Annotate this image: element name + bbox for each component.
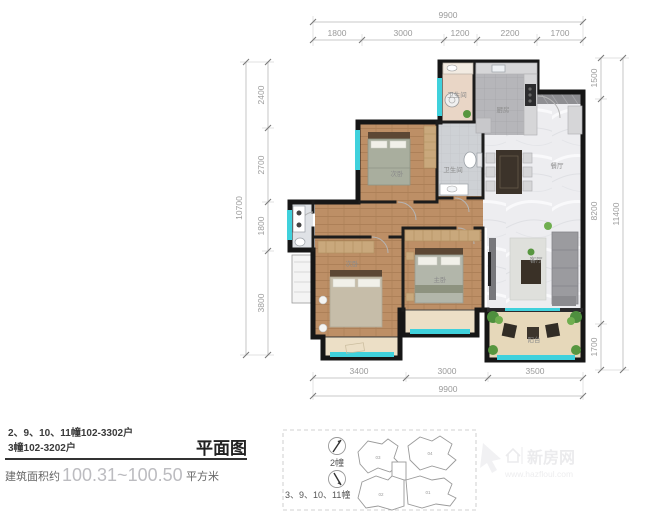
watermark-url: www.hazfloul.com [504, 469, 573, 479]
floorplan-page: 9900 1800 3000 1200 2200 1700 10700 2400… [0, 0, 650, 512]
dim-label: 2200 [501, 28, 520, 38]
stool [319, 324, 327, 332]
dim-label: 1800 [328, 28, 347, 38]
dim-label: 1700 [551, 28, 570, 38]
master-wardrobe [405, 230, 480, 241]
dim-label: 2700 [256, 155, 266, 174]
bedroom3-bay-glass [330, 352, 394, 357]
floorplan-canvas: 9900 1800 3000 1200 2200 1700 10700 2400… [0, 0, 650, 512]
room-label-bed2: 次卧 [391, 169, 405, 178]
site-label: 04 [427, 451, 433, 456]
tv [488, 252, 491, 286]
dim-label: 3500 [526, 366, 545, 376]
dim-label: 3800 [256, 293, 266, 312]
kitchen-sink [492, 65, 505, 72]
site-building-01 [406, 476, 456, 508]
burner [528, 87, 531, 90]
bed-throw [415, 285, 463, 293]
watermark-brand: 新房网 [527, 448, 575, 467]
unit-numbers-line1: 2、9、10、11幢102-3302户 [8, 426, 133, 439]
dim-label: 10700 [234, 196, 244, 220]
side-table [552, 296, 576, 306]
dim-label: 2400 [256, 85, 266, 104]
nightstand [406, 293, 414, 301]
entry-cabinet [568, 106, 582, 134]
master-headboard [415, 248, 463, 255]
legend-box: 2幢 3、9、10、11幢 03 04 02 01 [283, 430, 476, 510]
site-plan: 03 04 02 01 [358, 436, 456, 510]
bath1-basin [447, 65, 457, 71]
balcony-glass [497, 355, 575, 360]
plant [463, 110, 471, 118]
pillow [333, 279, 355, 287]
room-label-bath1: 卫生间 [447, 90, 467, 99]
pillow [418, 257, 437, 265]
dimension-left: 10700 2400 2700 1800 3800 [234, 59, 274, 358]
room-label-bath2: 卫生间 [443, 165, 463, 174]
balcony-chair [545, 323, 560, 338]
burner [528, 93, 531, 96]
bathroom3-window [287, 210, 292, 240]
bed2-wardrobe [424, 126, 436, 168]
area-suffix: 平方米 [186, 469, 219, 483]
bedroom2-window [355, 130, 360, 170]
house-icon [506, 449, 520, 462]
bed2-headboard [368, 132, 410, 139]
room-label-kitchen: 厨房 [497, 105, 510, 114]
dim-label: 9900 [439, 10, 458, 20]
site-label: 01 [425, 490, 431, 495]
dim-extensions [313, 16, 583, 46]
bath2-basin [447, 186, 457, 192]
plant [571, 345, 581, 355]
dim-ticks [310, 19, 586, 43]
bathroom1-window [437, 78, 442, 116]
dining-chair [523, 167, 532, 177]
dim-label: 3400 [350, 366, 369, 376]
bath3-toilet [295, 238, 305, 246]
dim-label: 1500 [589, 68, 599, 87]
plant [495, 316, 503, 324]
dim-label: 1700 [589, 337, 599, 356]
balcony-chair [502, 323, 517, 338]
pillow [371, 141, 387, 148]
unit-numbers-line2: 3幢102-3202户 [8, 441, 76, 454]
bath3-vanity [293, 206, 305, 232]
site-label: 03 [375, 455, 381, 460]
dimension-top: 9900 1800 3000 1200 2200 1700 [310, 10, 586, 46]
kitchen-counter-top [476, 63, 537, 74]
area-value: 100.31~100.50 [62, 465, 183, 485]
dining-chair [523, 153, 532, 163]
room-label-bed3: 次卧 [346, 259, 360, 268]
dim-label: 3000 [438, 366, 457, 376]
plant [488, 345, 498, 355]
master-bay-glass [410, 329, 470, 334]
corridor-floor [315, 202, 483, 228]
bath3-basin [297, 211, 302, 216]
bed3-headboard [330, 270, 382, 277]
title-block: 2、9、10、11幢102-3302户 3幢102-3202户 平面图 建筑面积… [5, 426, 247, 485]
dim-label: 1200 [451, 28, 470, 38]
dim-label: 8200 [589, 201, 599, 220]
dim-lines [313, 22, 583, 40]
toilet [464, 152, 476, 168]
balcony-sliding-glass [505, 308, 560, 311]
compass-label-top: 2幢 [330, 457, 344, 468]
pillow [358, 279, 380, 287]
dim-label: 1800 [256, 216, 266, 235]
room-label-master: 主卧 [434, 275, 448, 284]
plant [567, 317, 575, 325]
toilet-tank [477, 153, 482, 167]
floor-plan: 卫生间 厨房 卫生间 次卧 餐厅 客厅 主卧 次卧 阳台 [287, 62, 583, 360]
pillow [390, 141, 406, 148]
room-label-dining: 餐厅 [551, 161, 565, 170]
compass-south [329, 471, 346, 488]
bath3-basin [297, 223, 302, 228]
dining-chair [486, 181, 495, 191]
watermark-cursor-shape [480, 443, 501, 473]
dimension-bottom: 3400 3000 3500 9900 [310, 366, 586, 400]
compass-north [329, 438, 346, 455]
plant [528, 249, 535, 256]
burner [528, 99, 531, 102]
site-label: 02 [378, 492, 384, 497]
dimension-right: 1500 8200 1700 11400 [589, 55, 629, 373]
area-prefix: 建筑面积约 [5, 469, 60, 483]
dining-chair [486, 153, 495, 163]
dim-label: 9900 [439, 384, 458, 394]
dim-label: 11400 [611, 202, 621, 225]
fridge [476, 118, 491, 133]
bed3-wardrobe [318, 241, 374, 253]
stool [319, 296, 327, 304]
compass-label-bottom: 3、9、10、11幢 [285, 489, 350, 500]
room-label-balcony: 阳台 [528, 335, 541, 344]
pillow [441, 257, 460, 265]
plant [544, 222, 552, 230]
plan-title: 平面图 [196, 439, 247, 458]
nightstand [406, 252, 414, 260]
room-label-living: 客厅 [530, 255, 544, 264]
dining-chair [486, 167, 495, 177]
watermark: 新房网 www.hazfloul.com [480, 443, 575, 479]
dining-chair [523, 181, 532, 191]
dim-label: 3000 [394, 28, 413, 38]
